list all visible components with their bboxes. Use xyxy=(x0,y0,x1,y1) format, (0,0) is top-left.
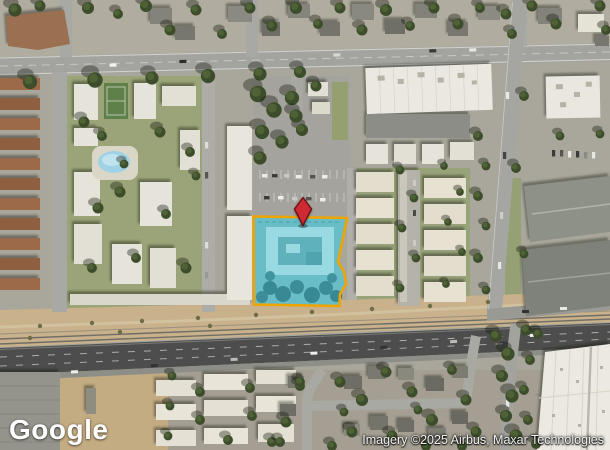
parcel-fill xyxy=(254,217,348,307)
attribution-text: Imagery ©2025 Airbus, Maxar Technologies xyxy=(362,433,604,447)
map-attribution: Imagery ©2025 Airbus, Maxar Technologies xyxy=(362,433,604,447)
aerial-imagery xyxy=(0,0,610,450)
swimming-pool xyxy=(92,146,138,180)
map-canvas[interactable]: Google Imagery ©2025 Airbus, Maxar Techn… xyxy=(0,0,610,450)
tennis-court xyxy=(104,83,128,119)
parcel-highlight xyxy=(254,217,348,307)
google-logo-text: Google xyxy=(9,414,108,445)
left-apartment-rows xyxy=(0,78,40,290)
google-logo[interactable]: Google xyxy=(9,414,108,446)
